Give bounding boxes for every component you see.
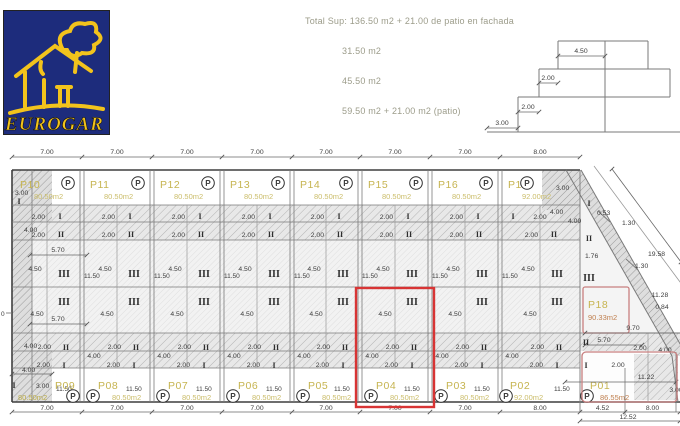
boundary-span-dim: 4.00 <box>365 353 378 360</box>
depth-dim: 11.50 <box>404 386 420 393</box>
zone-dim: 4.50 <box>523 311 536 318</box>
plot-area: 80.50m2 <box>252 393 281 402</box>
zone-dim: 2.00 <box>107 362 120 369</box>
zone-dim: 4.50 <box>309 311 322 318</box>
zone-marker-III: III <box>406 297 418 308</box>
corner-dim: 4.00 <box>550 209 563 216</box>
top-width-dim: 7.00 <box>388 149 401 156</box>
section-dim: 3.00 <box>495 120 508 127</box>
plot-area: 92.00m2 <box>522 192 551 201</box>
zone-marker-I: I <box>198 212 201 221</box>
zone-marker-III: III <box>268 269 280 280</box>
parking-letter: P <box>135 179 141 188</box>
zone-dim: 4.50 <box>98 266 111 273</box>
bottom-width-dim: 7.00 <box>110 405 123 412</box>
logo-brand-text: EUROGAR <box>4 114 104 135</box>
depth-dim: 11.50 <box>432 273 448 280</box>
top-width-dim: 7.00 <box>250 149 263 156</box>
plot-id: P02 <box>510 380 530 392</box>
zone-marker-I: I <box>58 212 61 221</box>
zone-marker-III: III <box>337 269 349 280</box>
top-width-dim: 7.00 <box>458 149 471 156</box>
zone-dim: 2.00 <box>533 214 546 221</box>
zone-marker-II: II <box>342 343 348 352</box>
zone-dim: 2.00 <box>242 232 255 239</box>
parking-letter: P <box>205 179 211 188</box>
zone-dim: 2.00 <box>530 362 543 369</box>
zone-dim: 4.50 <box>448 311 461 318</box>
plot-id: P08 <box>98 380 118 392</box>
overall-width-dim: 12.52 <box>619 414 636 421</box>
eurogar-logo: EUROGAR <box>3 10 110 135</box>
zone-dim: 2.00 <box>450 232 463 239</box>
zone-marker-II: II <box>133 343 139 352</box>
bottom-width-dim: 7.00 <box>180 405 193 412</box>
zone-marker-II: II <box>337 230 343 239</box>
plot-id: P04 <box>376 380 396 392</box>
zone-marker-III: III <box>551 269 563 280</box>
zone-marker-I: I <box>12 381 15 390</box>
plot-id: P07 <box>168 380 188 392</box>
parking-letter: P <box>275 179 281 188</box>
zone-dim: 2.00 <box>32 214 45 221</box>
plot-id: P16 <box>438 179 458 191</box>
parking-letter: P <box>230 392 236 401</box>
zone-marker-II: II <box>268 230 274 239</box>
top-width-dim: 7.00 <box>40 149 53 156</box>
plot-id: P13 <box>230 179 250 191</box>
zone-marker-III: III <box>198 269 210 280</box>
zone-dim: 4.50 <box>238 266 251 273</box>
bottom-width-dim: 8.00 <box>646 405 659 412</box>
plot-area: 80.50m2 <box>322 393 351 402</box>
right-dim: 1.30 <box>635 263 648 270</box>
parking-letter: P <box>524 179 530 188</box>
bottom-width-dim: 7.00 <box>319 405 332 412</box>
zone-marker-III: III <box>58 297 70 308</box>
zone-dim: 4.50 <box>240 311 253 318</box>
right-dim: 9.70 <box>626 325 639 332</box>
depth-dim: 11.50 <box>154 273 170 280</box>
plot-id: P03 <box>446 380 466 392</box>
zone-marker-III: III <box>406 269 418 280</box>
zone-dim: 2.00 <box>172 214 185 221</box>
depth-dim: 11.50 <box>334 386 350 393</box>
parking-letter: P <box>438 392 444 401</box>
zone-marker-II: II <box>481 343 487 352</box>
zone-marker-II: II <box>406 230 412 239</box>
zone-dim: 4.50 <box>168 266 181 273</box>
right-dim: 11.22 <box>638 374 655 381</box>
plot-area: 80.50m2 <box>174 192 203 201</box>
plot-area: 86.55m2 <box>600 393 629 402</box>
parking-letter: P <box>90 392 96 401</box>
bottom-width-dim: 4.52 <box>596 405 609 412</box>
zone-dim: 2.00 <box>37 362 50 369</box>
zone-marker-II: II <box>58 230 64 239</box>
zone-marker-I: I <box>272 361 275 370</box>
depth-dim: 11.50 <box>126 386 142 393</box>
zone-dim: 4.50 <box>307 266 320 273</box>
depth-dim: 11.50 <box>84 273 100 280</box>
zone-marker-II: II <box>583 338 589 347</box>
boundary-span-dim: 4.00 <box>87 353 100 360</box>
right-dim: 0.84 <box>655 304 668 311</box>
area-line-2: 45.50 m2 <box>342 76 381 86</box>
zone-marker-II: II <box>556 343 562 352</box>
zone-marker-I: I <box>17 197 20 206</box>
right-dim: 2.00 <box>633 345 646 352</box>
left-dim: 3.00 <box>15 190 28 197</box>
bottom-width-dim: 7.00 <box>458 405 471 412</box>
depth-dim: 11.50 <box>294 273 310 280</box>
left-dim: 4.00 <box>22 367 35 374</box>
zone-marker-II: II <box>203 343 209 352</box>
zone-dim: 2.00 <box>311 232 324 239</box>
zone-dim: 4.50 <box>446 266 459 273</box>
parking-letter: P <box>70 392 76 401</box>
plot-area: 80.50m2 <box>112 393 141 402</box>
plot-area: 80.50m2 <box>382 192 411 201</box>
parking-letter: P <box>503 392 509 401</box>
sub-dim: 5.70 <box>51 247 64 254</box>
depth-dim: 11.50 <box>502 273 518 280</box>
plot-id: P05 <box>308 380 328 392</box>
depth-dim: 11.50 <box>224 273 240 280</box>
right-dim: 19.58 <box>648 251 665 258</box>
zone-marker-I: I <box>62 361 65 370</box>
boundary-span-dim: 4.00 <box>297 353 310 360</box>
zone-marker-I: I <box>511 212 514 221</box>
plot-id: P15 <box>368 179 388 191</box>
zone-marker-I: I <box>337 212 340 221</box>
zone-marker-II: II <box>198 230 204 239</box>
sub-dim: 5.70 <box>51 316 64 323</box>
right-dim: 11.28 <box>652 292 669 299</box>
zone-marker-II: II <box>411 343 417 352</box>
zone-marker-III: III <box>476 297 488 308</box>
depth-dim: 11.50 <box>554 386 570 393</box>
section-profile: 4.502.002.003.00 <box>485 41 680 132</box>
zone-marker-III: III <box>337 297 349 308</box>
plot-id: P11 <box>90 179 109 191</box>
parking-letter: P <box>413 179 419 188</box>
zone-dim: 4.50 <box>170 311 183 318</box>
zone-marker-III: III <box>583 273 595 284</box>
zone-dim: 4.50 <box>376 266 389 273</box>
zone-dim: 2.00 <box>108 344 121 351</box>
plot-area: 80.50m2 <box>104 192 133 201</box>
zone-dim: 2.00 <box>248 344 261 351</box>
zone-dim: 2.00 <box>456 344 469 351</box>
plot-id: P12 <box>160 179 180 191</box>
plot-id: P18 <box>588 299 608 311</box>
depth-dim: 11.50 <box>266 386 282 393</box>
top-width-dim: 7.00 <box>319 149 332 156</box>
right-dim: 3.00 <box>669 387 680 394</box>
zone-marker-I: I <box>128 212 131 221</box>
section-dim: 2.00 <box>541 75 554 82</box>
depth-dim: 11.50 <box>362 273 378 280</box>
zone-dim: 4.50 <box>28 266 41 273</box>
plot-area: 80.50m2 <box>314 192 343 201</box>
parking-letter: P <box>483 179 489 188</box>
parking-letter: P <box>300 392 306 401</box>
zone-marker-I: I <box>202 361 205 370</box>
top-width-dim: 8.00 <box>533 149 546 156</box>
zone-marker-II: II <box>128 230 134 239</box>
zone-marker-I: I <box>268 212 271 221</box>
zone-dim: 2.00 <box>102 232 115 239</box>
plot-area: 80.50m2 <box>460 393 489 402</box>
corner-dim: 4.00 <box>568 218 581 225</box>
plot-area: 80.50m2 <box>452 192 481 201</box>
plot-id: P14 <box>300 179 320 191</box>
plot-area: 80.50m2 <box>18 393 47 402</box>
zone-dim: 2.00 <box>242 214 255 221</box>
boundary-span-dim: 4.00 <box>435 353 448 360</box>
zone-dim: 4.50 <box>100 311 113 318</box>
zone-marker-III: III <box>551 297 563 308</box>
zone-marker-II: II <box>273 343 279 352</box>
zone-dim: 4.50 <box>30 311 43 318</box>
zone-marker-I: I <box>410 361 413 370</box>
corner-dim: 3.00 <box>556 185 569 192</box>
area-line-1: 31.50 m2 <box>342 46 381 56</box>
zone-marker-II: II <box>63 343 69 352</box>
parking-letter: P <box>368 392 374 401</box>
left-dim: 3.00 <box>36 383 49 390</box>
zone-dim: 2.00 <box>102 214 115 221</box>
zone-marker-III: III <box>268 297 280 308</box>
right-dim: 1.76 <box>585 253 598 260</box>
right-dim: 2.00 <box>611 362 624 369</box>
parking-letter: P <box>160 392 166 401</box>
zone-dim: 2.00 <box>525 232 538 239</box>
top-width-dim: 7.00 <box>180 149 193 156</box>
zone-dim: 2.00 <box>311 214 324 221</box>
zone-marker-III: III <box>58 269 70 280</box>
boundary-span-dim: 4.00 <box>157 353 170 360</box>
left-dim: 4.00 <box>24 343 37 350</box>
plot-id: P06 <box>238 380 258 392</box>
parking-letter: P <box>65 179 71 188</box>
zone-dim: 2.00 <box>380 214 393 221</box>
zone-marker-III: III <box>198 297 210 308</box>
zone-marker-III: III <box>128 297 140 308</box>
boundary-span-dim: 4.00 <box>227 353 240 360</box>
zone-dim: 4.50 <box>521 266 534 273</box>
parking-letter: P <box>584 392 590 401</box>
zone-marker-I: I <box>476 212 479 221</box>
depth-dim: 11.50 <box>474 386 490 393</box>
left-dim: 4.00 <box>24 227 37 234</box>
zone-dim: 2.00 <box>380 232 393 239</box>
bottom-width-dim: 7.00 <box>250 405 263 412</box>
zone-marker-II: II <box>586 234 592 243</box>
zone-dim: 2.00 <box>317 344 330 351</box>
zone-dim: 4.50 <box>378 311 391 318</box>
plot-area: 80.50m2 <box>34 192 63 201</box>
zone-marker-I: I <box>341 361 344 370</box>
plot-area: 80.50m2 <box>182 393 211 402</box>
zone-marker-III: III <box>476 269 488 280</box>
right-dim: 4.00 <box>658 347 671 354</box>
zone-dim: 2.00 <box>455 362 468 369</box>
zone-dim: 2.00 <box>178 344 191 351</box>
datum-label: 0 <box>1 311 5 318</box>
zone-marker-I: I <box>555 361 558 370</box>
zone-dim: 2.00 <box>316 362 329 369</box>
zone-marker-II: II <box>551 230 557 239</box>
drawing-page: 4.502.002.003.00 7.007.007.007.007.007.0… <box>0 0 680 426</box>
zone-dim: 2.00 <box>172 232 185 239</box>
plot-area: 92.00m2 <box>514 393 543 402</box>
right-dim: 1.30 <box>622 220 635 227</box>
plot-area: 90.33m2 <box>588 313 617 322</box>
zone-dim: 2.00 <box>247 362 260 369</box>
right-dim: 5.70 <box>597 337 610 344</box>
section-dim: 2.00 <box>521 104 534 111</box>
bottom-width-dim: 7.00 <box>40 405 53 412</box>
bottom-width-dim: 8.00 <box>533 405 546 412</box>
zone-marker-I: I <box>406 212 409 221</box>
zone-dim: 2.00 <box>38 344 51 351</box>
total-surface-line: Total Sup: 136.50 m2 + 21.00 de patio en… <box>305 16 514 26</box>
depth-dim: 11.50 <box>196 386 212 393</box>
zone-dim: 2.00 <box>385 362 398 369</box>
zone-dim: 2.00 <box>450 214 463 221</box>
parking-letter: P <box>343 179 349 188</box>
boundary-span-dim: 4.00 <box>505 353 518 360</box>
zone-marker-II: II <box>476 230 482 239</box>
zone-dim: 2.00 <box>386 344 399 351</box>
zone-marker-I: I <box>480 361 483 370</box>
area-line-3: 59.50 m2 + 21.00 m2 (patio) <box>342 106 461 116</box>
zone-marker-I: I <box>584 361 587 370</box>
section-dim: 4.50 <box>574 48 587 55</box>
zone-marker-III: III <box>128 269 140 280</box>
plot-area: 80.50m2 <box>390 393 419 402</box>
right-dim: 0.53 <box>597 210 610 217</box>
zone-marker-I: I <box>587 199 590 208</box>
zone-dim: 2.00 <box>177 362 190 369</box>
plot-area: 80.50m2 <box>244 192 273 201</box>
zone-marker-I: I <box>132 361 135 370</box>
zone-dim: 2.00 <box>531 344 544 351</box>
top-width-dim: 7.00 <box>110 149 123 156</box>
